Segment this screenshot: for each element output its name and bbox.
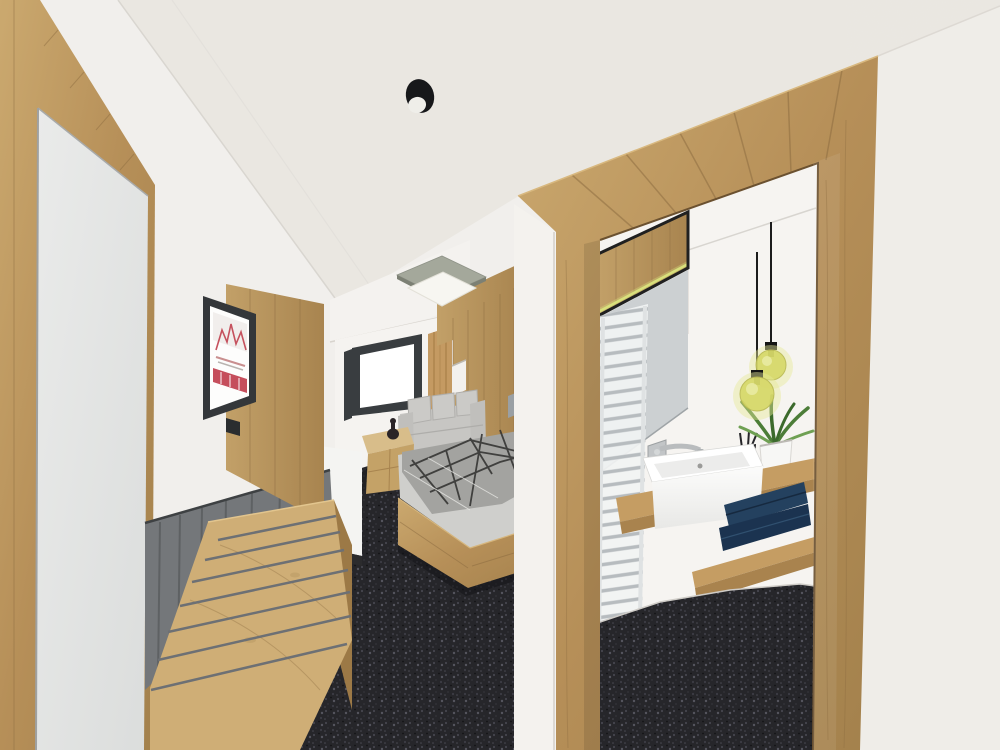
rendered-scene xyxy=(0,0,1000,750)
window-pane xyxy=(360,344,414,408)
door-edge xyxy=(344,349,352,421)
mirror-glass xyxy=(36,108,148,750)
right-wall xyxy=(860,6,1000,750)
sink-drain xyxy=(698,464,703,469)
post-inner-shade xyxy=(584,240,600,750)
towel-radiator xyxy=(598,304,648,642)
pendant-globe xyxy=(740,377,774,411)
back-cushion xyxy=(432,393,455,420)
faucet-handle xyxy=(654,449,660,455)
doorway-wall-face xyxy=(514,204,556,750)
